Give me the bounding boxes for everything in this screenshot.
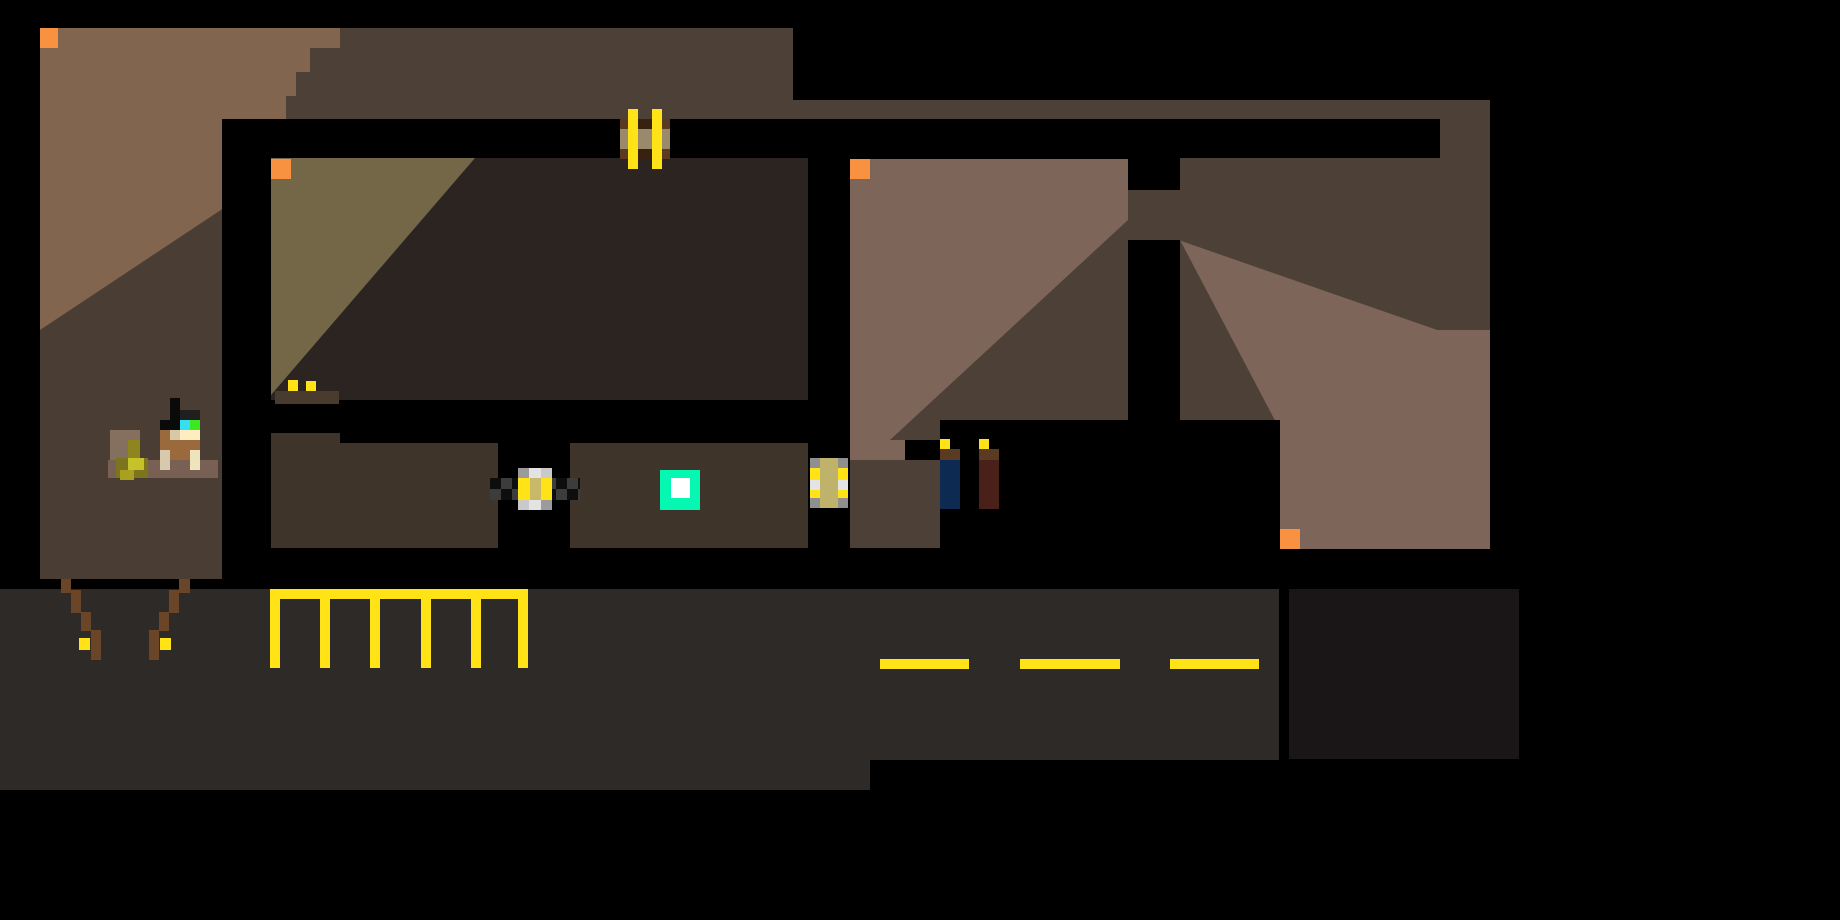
gear-core-stripe [530, 478, 541, 500]
sconce-ledge [275, 391, 339, 404]
root2-seg2 [169, 590, 179, 613]
gear-cap-top-right [541, 468, 552, 478]
lantern-left-y2 [810, 490, 820, 498]
lantern-body[interactable] [820, 458, 838, 508]
game-viewport[interactable] [0, 0, 1840, 920]
player-face-cream [180, 430, 200, 440]
player-hat-brim-right [180, 410, 200, 420]
room3-dark-corner [1180, 420, 1280, 549]
sconce-light-1[interactable] [288, 380, 298, 391]
ground-mid [870, 589, 1279, 760]
fence-post-3 [370, 589, 380, 668]
road-dash-3 [1170, 659, 1259, 669]
ceiling-band-right [793, 100, 1490, 119]
ground-left [0, 589, 870, 790]
platform-left-upper [271, 433, 340, 548]
gear-cap-bot-left [518, 500, 529, 510]
sconce-light-2[interactable] [306, 381, 316, 391]
wall-step-2 [222, 48, 310, 72]
candle1-holder [940, 449, 960, 460]
root2-seg1 [179, 579, 190, 593]
checkpoint-room2[interactable] [850, 159, 870, 179]
fence-post-2 [320, 589, 330, 668]
gear-cap-bot-mid [529, 500, 541, 510]
player-leg-left [160, 450, 170, 470]
lantern-right-y1 [838, 468, 848, 480]
fence-post-4 [421, 589, 431, 668]
bottle-glow-2 [120, 470, 134, 480]
root1-seg2 [71, 590, 81, 613]
lantern-left-bot [810, 498, 820, 508]
road-dash-1 [880, 659, 969, 669]
candle1-body[interactable] [940, 460, 960, 509]
player-face-beige [170, 430, 180, 440]
portal-core [671, 478, 690, 498]
ladder-rail-right[interactable] [652, 109, 662, 169]
player-leg-right [190, 450, 200, 470]
root1-seg1 [61, 579, 71, 593]
room2-block [850, 460, 940, 548]
root2-seg3 [159, 612, 169, 631]
lantern-left-top [810, 458, 820, 468]
root2-seg4 [149, 630, 159, 660]
candle2-flame[interactable] [979, 439, 989, 449]
player-eye-green [190, 420, 200, 430]
root1-seg3 [81, 612, 91, 631]
gear-cap-top-left [518, 468, 529, 478]
bottle-neck [128, 440, 140, 458]
road-dash-2 [1020, 659, 1120, 669]
wall-step-3 [222, 72, 296, 96]
fence-post-5 [471, 589, 481, 668]
player-hat-top[interactable] [170, 398, 180, 420]
checkpoint-room1[interactable] [271, 159, 291, 179]
lantern-right-bot [838, 498, 848, 508]
root2-berry[interactable] [160, 638, 171, 650]
ceiling-band-left [270, 28, 793, 119]
root1-berry[interactable] [79, 638, 90, 650]
wall-step-4 [222, 96, 286, 119]
lantern-right-mid [838, 480, 848, 490]
lantern-right-y2 [838, 490, 848, 498]
candle2-body[interactable] [979, 460, 999, 509]
fence-rail [270, 589, 528, 599]
ladder-rail-left[interactable] [628, 109, 638, 169]
divider-bridge [1128, 190, 1180, 240]
fence-post-6 [518, 589, 528, 668]
checkpoint-room3[interactable] [1280, 529, 1300, 549]
gear-cap-top-mid [529, 468, 541, 478]
player-hat-brim-left [160, 420, 180, 430]
root1-seg4 [91, 630, 101, 660]
lantern-left-y1 [810, 468, 820, 480]
lantern-left-mid [810, 480, 820, 490]
hatch-bottom-core [638, 149, 652, 159]
gear-cap-bot-right [541, 500, 552, 510]
lantern-right-top [838, 458, 848, 468]
candle1-flame[interactable] [940, 439, 950, 449]
candle-alcove [940, 420, 1128, 592]
ground-right [1289, 589, 1519, 759]
wall-step-1 [222, 28, 340, 48]
fence-post-1 [270, 589, 280, 668]
hatch-top-core [638, 119, 652, 129]
bottle-glow-1 [128, 458, 144, 470]
player-eye-cyan [180, 420, 190, 430]
checkpoint-topleft[interactable] [40, 28, 58, 48]
platform-left [340, 443, 498, 548]
candle2-holder [979, 449, 999, 460]
